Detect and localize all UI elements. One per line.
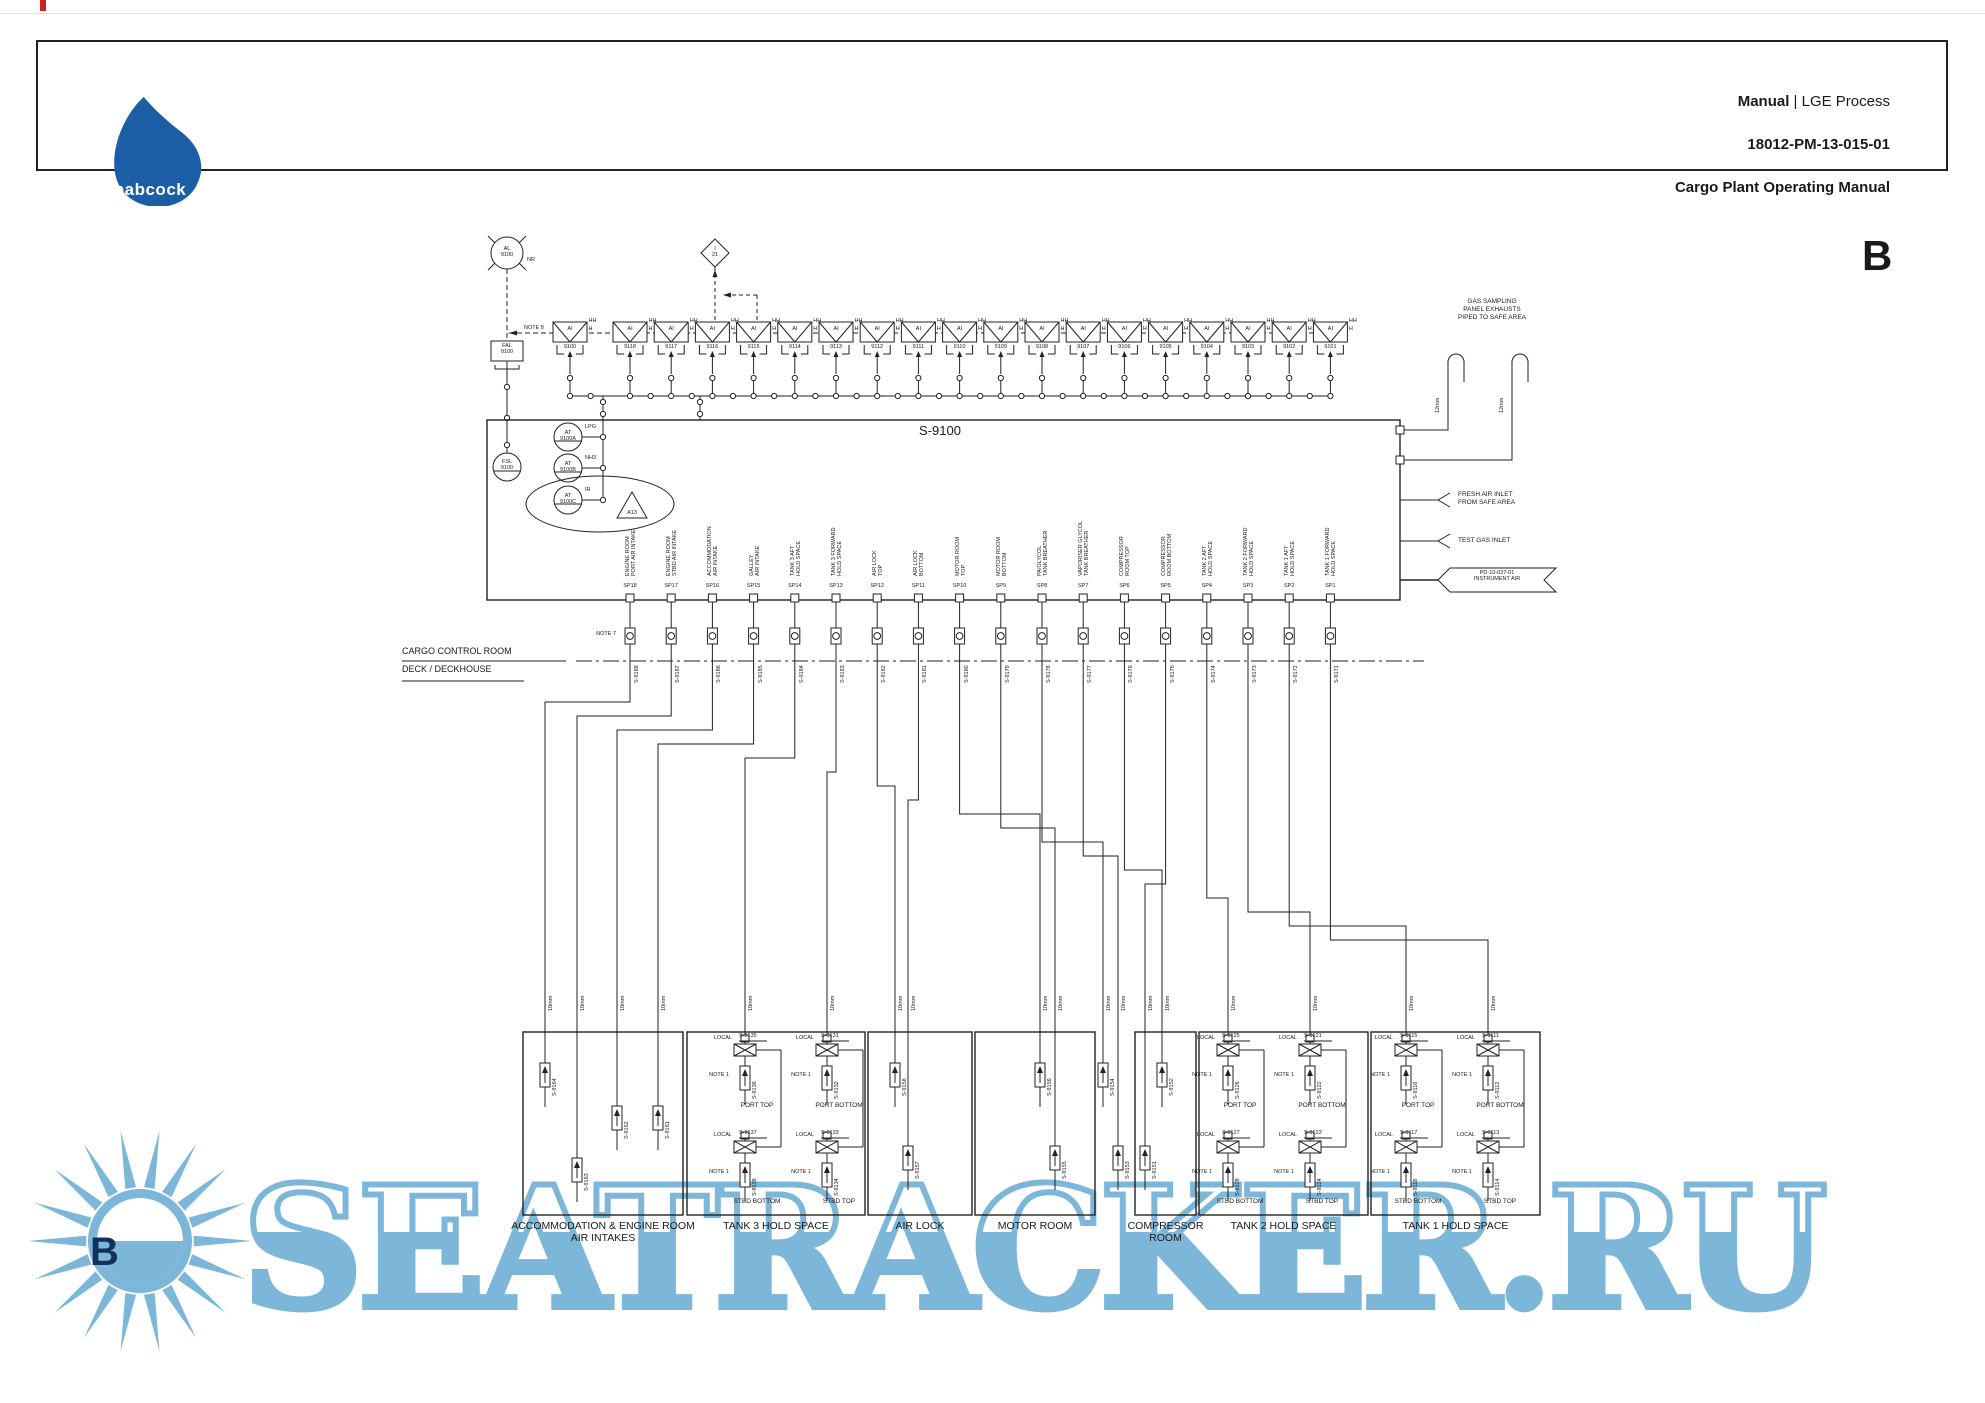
local-label: LOCAL [1375,1132,1393,1138]
arrow-head [713,270,718,277]
filter-tag: S-9152 [1169,1078,1175,1096]
junction-circle [1204,375,1209,380]
junction-circle [1327,633,1334,640]
detector-function: AI [792,326,797,332]
analyser-tag: AT 9100A [560,430,576,442]
junction-circle [1266,393,1271,398]
sample-drop-line [1207,644,1228,1032]
sample-point-number: SP2 [1284,583,1294,589]
sample-drop-line [1248,644,1310,1032]
junction-circle [1101,393,1106,398]
space-name: COMPRESSOR ROOM [1128,1220,1204,1244]
junction-circle [1019,393,1024,398]
sample-position-label: STBD TOP [1306,1198,1338,1206]
arrow-head [834,351,839,357]
pipe-size: 10mm [661,996,667,1011]
filter-tag: S-9112 [1495,1082,1501,1099]
detector-function: AI [1328,326,1333,332]
alarm-hh: HH [1102,318,1110,324]
sample-point-number: SP1 [1325,583,1335,589]
local-valve-tag: S-9115 [1400,1033,1417,1039]
junction-circle [875,393,880,398]
arrow-head [1081,351,1086,357]
sample-valve-tag: S-9180 [964,665,970,683]
filter-tag: S-9163 [584,1173,590,1191]
sample-valve-tag: S-9173 [1252,665,1258,683]
pipe-size: 10mm [1409,996,1415,1011]
junction-circle [710,375,715,380]
sample-drop-line [658,644,754,1032]
detector-function: AI [1245,326,1250,332]
vent-size: 12mm [1499,398,1505,413]
detector-tag: 9104 [1201,344,1213,350]
arrow-head [1246,351,1251,357]
local-label: LOCAL [1279,1035,1297,1041]
pipe-size: 10mm [1165,996,1171,1011]
sample-point-desc: COMPRESSOR ROOM BOTTOM [1161,534,1173,576]
alarm-h: H [1267,326,1271,332]
sample-point-connection [1203,594,1211,602]
detector-tag: 9117 [665,344,677,350]
gas-detector [943,322,977,342]
sample-point-connection [1120,594,1128,602]
junction-circle [1203,633,1210,640]
junction-circle [1060,393,1065,398]
detector-tag: 9112 [871,344,883,350]
filter-tag: S-9138 [752,1178,758,1196]
note-1: NOTE 1 [709,1169,729,1175]
sample-point-number: SP13 [829,583,842,589]
filter-tag: S-9157 [915,1161,921,1179]
bracket [1048,345,1055,354]
sample-valve-tag: S-9181 [922,665,928,683]
detector-function: AI [627,326,632,332]
sample-drop-line [1330,644,1488,1032]
alarm-h: H [1225,326,1229,332]
note-8: NOTE 8 [524,325,544,331]
gas-detector [860,322,894,342]
junction-circle [1245,633,1252,640]
filter-tag: S-9151 [1152,1161,1158,1179]
sample-valve-tag: S-9182 [881,665,887,683]
alarm-h: H [1061,326,1065,332]
detector-tag: 9100 [564,344,576,350]
junction-circle [792,393,797,398]
sample-point-desc: AIR LOCK TOP [872,550,884,576]
pipe-line [519,263,526,270]
sample-drop-line [1145,644,1166,1032]
space-box [1371,1032,1540,1215]
junction-circle [1121,633,1128,640]
local-label: LOCAL [1375,1035,1393,1041]
panel-connection [1396,426,1404,434]
junction-circle [957,375,962,380]
junction-circle [916,393,921,398]
space-box [1199,1032,1368,1215]
arrow-head [1328,351,1333,357]
gas-detector [1025,322,1059,342]
space-name: TANK 3 HOLD SPACE [723,1220,829,1232]
detector-tag: 9108 [1036,344,1048,350]
junction-circle [915,633,922,640]
arrow-head [628,351,633,357]
junction-circle [567,375,572,380]
pipe-size: 10mm [1106,996,1112,1011]
junction-circle [697,399,702,404]
sample-valve-tag: S-9171 [1334,665,1340,683]
sample-point-desc: ENGINE ROOM STBD AIR INTAKE [666,530,678,576]
gas-detector [613,322,647,342]
junction-circle [1287,393,1292,398]
note-1: NOTE 1 [1452,1072,1472,1078]
sample-point-connection [791,594,799,602]
sample-position-label: STBD BOTTOM [1217,1198,1264,1206]
junction-circle [1245,393,1250,398]
junction-circle [600,497,605,502]
detector-function: AI [916,326,921,332]
revision-cloud [526,476,674,532]
space-name: TANK 1 HOLD SPACE [1403,1220,1509,1232]
bracket [842,345,849,354]
space-name: TANK 2 HOLD SPACE [1231,1220,1337,1232]
sample-point-connection [914,594,922,602]
pipe-size: 10mm [748,996,754,1011]
vent-size: 12mm [1435,398,1441,413]
junction-circle [1081,375,1086,380]
local-valve-tag: S-9131 [821,1033,839,1039]
sample-valve-tag: S-9175 [1170,665,1176,683]
detector-function: AI [998,326,1003,332]
interlock-tag: I 21 [712,246,718,258]
detector-tag: 9118 [624,344,636,350]
sample-point-number: SP12 [870,583,883,589]
alarm-h: H [1308,326,1312,332]
junction-circle [1184,393,1189,398]
filter-tag: S-9156 [1047,1078,1053,1096]
alarm-h: H [978,326,982,332]
sample-point-connection [1079,594,1087,602]
note-1: NOTE 1 [791,1169,811,1175]
alarm-h: H [1184,326,1188,332]
bracket [924,345,931,354]
fsl-tag: FSL 9100 [501,459,513,471]
pipe-size: 10mm [548,996,554,1011]
note-1: NOTE 1 [791,1072,811,1078]
space-name: MOTOR ROOM [998,1220,1072,1232]
gas-detector [778,322,812,342]
note-1: NOTE 1 [1370,1072,1390,1078]
gas-detector [1066,322,1100,342]
junction-circle [1204,393,1209,398]
sample-drop-line [1124,644,1162,1032]
junction-circle [1122,375,1127,380]
junction-circle [956,633,963,640]
junction-circle [751,375,756,380]
sample-point-number: SP15 [747,583,760,589]
junction-circle [1163,393,1168,398]
junction-circle [998,393,1003,398]
alarm-hh: HH [731,318,739,324]
arrow-head [723,293,731,298]
filter-tag: S-9132 [834,1081,840,1099]
local-label: LOCAL [714,1035,732,1041]
sample-drop-line [908,644,918,1032]
junction-circle [772,393,777,398]
local-valve-tag: S-9127 [1222,1130,1240,1136]
alarm-hh: HH [1308,318,1316,324]
junction-circle [1039,375,1044,380]
pipe-size: 10mm [1058,996,1064,1011]
sample-position-label: PORT BOTTOM [815,1102,862,1110]
gas-detector [1272,322,1306,342]
note-1: NOTE 1 [1370,1169,1390,1175]
arrow-head [792,351,797,357]
junction-circle [600,465,605,470]
detector-function: AI [567,326,572,332]
junction-circle [709,633,716,640]
sample-point-desc: TANK 2 AFT HOLD SPACE [1202,541,1214,576]
alarm-hh: HH [1061,318,1069,324]
bracket [947,345,954,354]
sample-point-desc: GALLEY AIR INTAKE [749,546,761,576]
bracket [1254,345,1261,354]
gas-detector [553,322,587,342]
alarm-ref: A13 [627,510,637,516]
junction-circle [697,411,702,416]
alarm-hh: HH [1267,318,1275,324]
alarm-hh: HH [649,318,657,324]
pipe-size: 10mm [911,996,917,1011]
arrow-head [669,351,674,357]
detector-function: AI [1081,326,1086,332]
alarm-hh: HH [1184,318,1192,324]
arrow-head [1287,351,1292,357]
sample-position-label: PORT BOTTOM [1476,1102,1523,1110]
sample-point-number: SP4 [1202,583,1212,589]
pipe-size: 10mm [1043,996,1049,1011]
arrow-head [751,351,756,357]
sample-drop-line [960,644,1040,1032]
sample-point-desc: PA/GLYCOL TANK BREATHER [1037,531,1049,576]
arrow-head [509,331,517,336]
pipe-size: 10mm [1313,996,1319,1011]
filter-tag: S-9136 [752,1081,758,1099]
filter-tag: S-9164 [552,1078,558,1096]
instrument-air-ref: PD-10-037-01 INSTRUMENT AIR [1474,570,1520,582]
local-valve-tag: S-9133 [821,1130,839,1136]
sample-point-number: SP3 [1243,583,1253,589]
sample-valve-tag: S-9176 [1128,665,1134,683]
detector-function: AI [1039,326,1044,332]
exhaust-note: GAS SAMPLING PANEL EXHAUSTS PIPED TO SAF… [1458,298,1526,322]
sample-point-desc: TANK 3 AFT HOLD SPACE [790,541,802,576]
bracket [1130,345,1137,354]
note-1: NOTE 1 [1452,1169,1472,1175]
panel-tag: S-9100 [919,424,961,438]
gas-detector [1313,322,1347,342]
junction-circle [600,411,605,416]
pipe-size: 10mm [830,996,836,1011]
sample-point-number: SP7 [1078,583,1088,589]
junction-circle [648,393,653,398]
bracket [760,345,767,354]
sample-point-desc: MOTOR ROOM BOTTOM [996,537,1008,576]
sample-drop-line [1289,644,1406,1032]
space-name: ACCOMMODATION & ENGINE ROOM AIR INTAKES [511,1220,695,1244]
detector-function: AI [1122,326,1127,332]
bracket [1336,345,1343,354]
junction-circle [627,375,632,380]
sample-point-desc: ACCOMMODATION AIR INTAKE [707,526,719,576]
junction-circle [854,393,859,398]
sample-point-number: SP10 [953,583,966,589]
gas-detector [1107,322,1141,342]
sample-position-label: STBD BOTTOM [734,1198,781,1206]
sample-point-connection [997,594,1005,602]
detector-tag: 9111 [913,344,924,350]
bracket [718,345,725,354]
junction-circle [730,393,735,398]
detector-tag: 9102 [1283,344,1295,350]
junction-circle [1245,375,1250,380]
note-1: NOTE 1 [1274,1072,1294,1078]
sample-drop-line [617,644,712,1032]
arrow-head [1040,351,1045,357]
sample-point-connection [1285,594,1293,602]
flow-arrow [1438,493,1450,507]
bracket [1213,345,1220,354]
detector-function: AI [710,326,715,332]
junction-circle [1039,633,1046,640]
sample-point-number: SP5 [1160,583,1170,589]
sample-point-number: SP8 [1037,583,1047,589]
sample-valve-tag: S-9188 [634,665,640,683]
detector-tag: 9101 [1324,344,1336,350]
sample-point-desc: TANK 3 FORWARD HOLD SPACE [831,528,843,577]
alarm-h: H [772,326,776,332]
junction-circle [1225,393,1230,398]
bracket [1089,345,1096,354]
junction-circle [833,375,838,380]
sample-point-connection [956,594,964,602]
local-label: LOCAL [1457,1132,1475,1138]
arrow-head [710,351,715,357]
arrow-head [875,351,880,357]
junction-circle [1142,393,1147,398]
pipe-line [519,236,526,243]
boundary-lower-label: DECK / DECKHOUSE [402,664,492,675]
pipe-size: 10mm [898,996,904,1011]
junction-circle [669,393,674,398]
sample-point-connection [750,594,758,602]
sample-point-connection [667,594,675,602]
pipe-size: 10mm [1491,996,1497,1011]
filter-tag: S-9114 [1495,1179,1501,1196]
alarm-h: H [855,326,859,332]
fal-tag: FAL 9100 [501,343,513,355]
sample-position-label: PORT TOP [1224,1102,1257,1110]
bracket [1172,345,1179,354]
filter-tag: S-9153 [1125,1161,1131,1179]
sample-drop-line [1083,644,1118,1032]
detector-function: AI [1204,326,1209,332]
junction-circle [1328,393,1333,398]
local-valve-tag: S-9125 [1222,1033,1240,1039]
detector-function: AI [751,326,756,332]
filter-tag: S-9118 [1413,1179,1419,1196]
boundary-upper-label: CARGO CONTROL ROOM [402,646,512,657]
sample-drop-line [877,644,895,1032]
junction-circle [750,633,757,640]
sample-valve-tag: S-9174 [1211,665,1217,683]
detector-function: AI [957,326,962,332]
junction-circle [689,393,694,398]
note-7: NOTE 7 [596,631,616,637]
arrow-head [1122,351,1127,357]
local-label: LOCAL [1279,1132,1297,1138]
space-box [868,1032,972,1215]
detector-tag: 9116 [706,344,718,350]
sample-point-number: SP17 [664,583,677,589]
sample-point-desc: VAPORISER GLYCOL TANK BREATHER [1078,521,1090,576]
sample-position-label: STBD TOP [1484,1198,1516,1206]
sample-point-desc: MOTOR ROOM TOP [955,537,967,576]
local-valve-tag: S-9135 [739,1033,757,1039]
bracket [864,345,871,354]
junction-circle [1286,633,1293,640]
filter-tag: S-9155 [1062,1161,1068,1179]
pipe-size: 10mm [1231,996,1237,1011]
panel-connection [1396,456,1404,464]
note-1: NOTE 1 [709,1072,729,1078]
junction-circle [916,375,921,380]
alarm-h: H [896,326,900,332]
sample-point-connection [873,594,881,602]
alarm-h: H [589,326,593,332]
bracket [905,345,912,354]
fresh-air-label: FRESH AIR INLET FROM SAFE AREA [1458,491,1515,507]
note-1: NOTE 1 [1192,1169,1212,1175]
sample-point-number: SP9 [996,583,1006,589]
bracket [782,345,789,354]
junction-circle [895,393,900,398]
note-1: NOTE 1 [1192,1072,1212,1078]
sample-point-desc: TANK 2 FORWARD HOLD SPACE [1243,528,1255,577]
alarm-hh: HH [1143,318,1151,324]
alarm-h: H [813,326,817,332]
space-box [1135,1032,1196,1215]
arrow-head [916,351,921,357]
bracket [883,345,890,354]
junction-circle [874,633,881,640]
detector-tag: 9105 [1159,344,1171,350]
sample-point-connection [832,594,840,602]
sample-valve-tag: S-9172 [1293,665,1299,683]
sample-point-number: SP14 [788,583,801,589]
junction-circle [504,442,509,447]
manual-page: babcock Manual | LGE Process 18012-PM-13… [0,0,1985,1403]
alarm-hh: HH [978,318,986,324]
junction-circle [791,633,798,640]
sample-point-connection [1162,594,1170,602]
filter-tag: S-9116 [1413,1082,1419,1099]
sample-position-label: STBD TOP [823,1198,855,1206]
gas-type-label: NH3 [585,455,596,461]
junction-circle [1163,375,1168,380]
space-name: AIR LOCK [895,1220,944,1232]
bracket [966,345,973,354]
local-label: LOCAL [714,1132,732,1138]
